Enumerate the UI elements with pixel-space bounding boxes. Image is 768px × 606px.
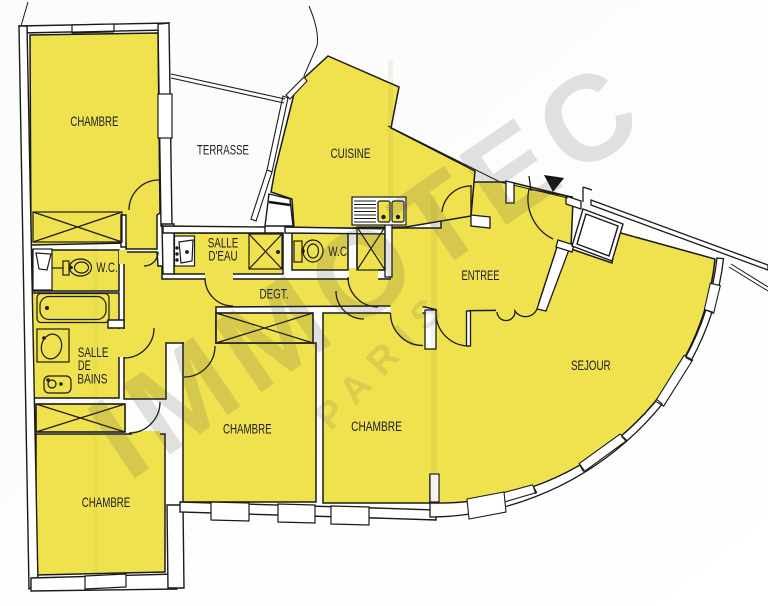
svg-text:SEJOUR: SEJOUR xyxy=(571,359,611,374)
svg-text:D'EAU: D'EAU xyxy=(208,248,237,264)
svg-text:TERRASSE: TERRASSE xyxy=(197,143,249,158)
svg-text:CUISINE: CUISINE xyxy=(331,145,371,161)
svg-text:CHAMBRE: CHAMBRE xyxy=(82,496,131,511)
svg-text:CHAMBRE: CHAMBRE xyxy=(70,114,118,129)
svg-text:W.C.: W.C. xyxy=(96,259,117,275)
svg-text:CHAMBRE: CHAMBRE xyxy=(351,419,402,435)
